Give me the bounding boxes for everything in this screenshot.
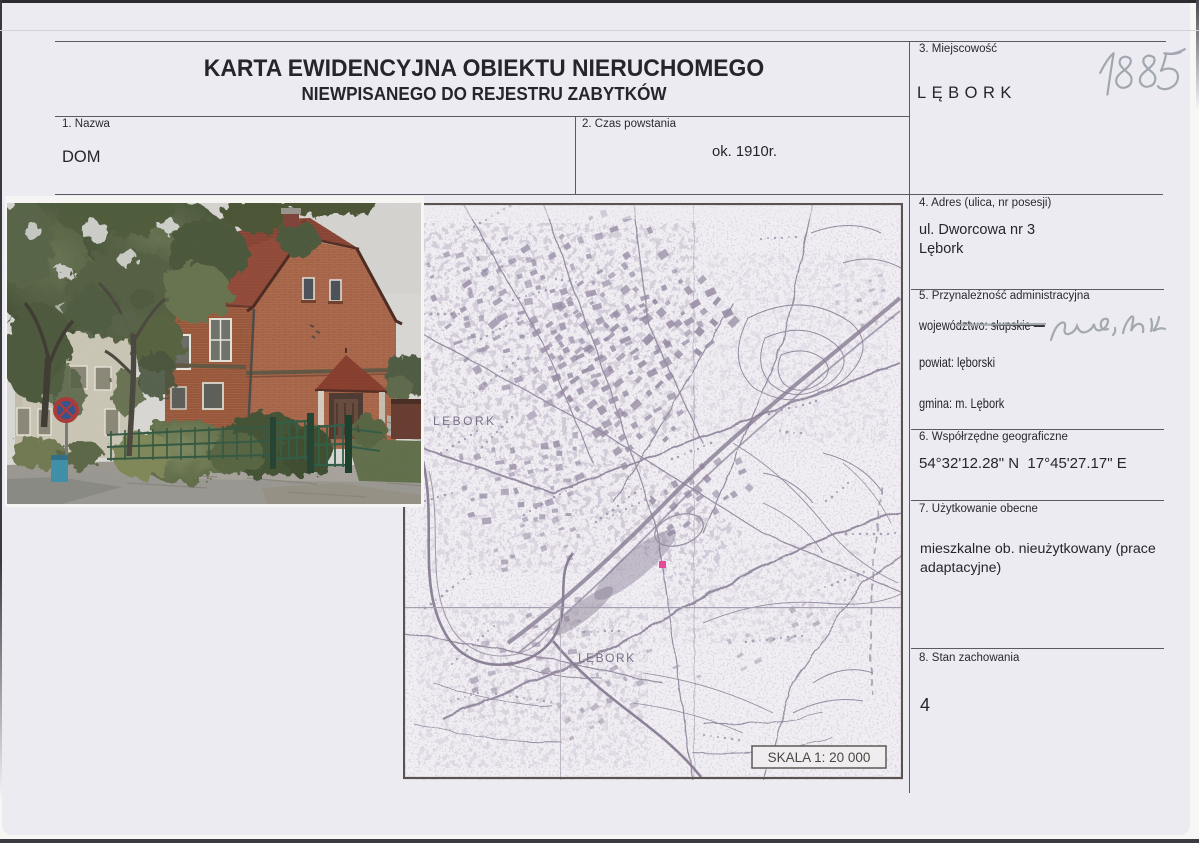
- svg-text:SKALA 1: 20 000: SKALA 1: 20 000: [768, 750, 871, 765]
- svg-text:LĘBORK: LĘBORK: [578, 651, 636, 665]
- svg-text:LĘBORK: LĘBORK: [433, 414, 497, 428]
